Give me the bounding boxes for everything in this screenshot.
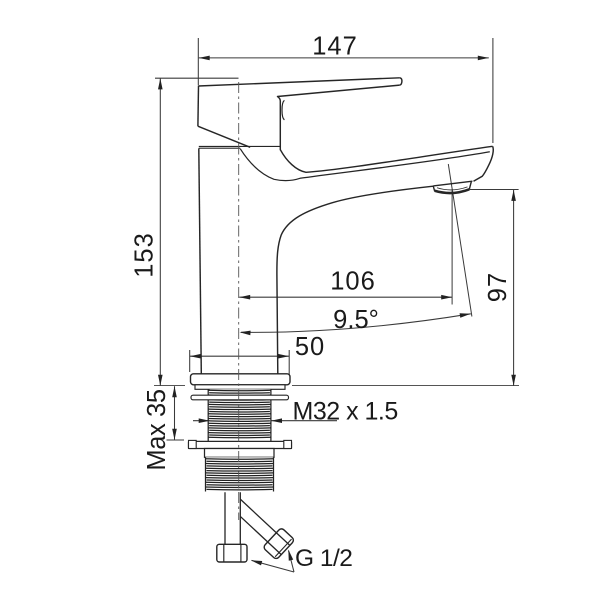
svg-text:9.5°: 9.5°	[333, 306, 379, 334]
svg-text:147: 147	[312, 33, 358, 61]
svg-text:153: 153	[131, 232, 159, 278]
svg-text:50: 50	[295, 333, 325, 361]
svg-text:G 1/2: G 1/2	[295, 545, 352, 572]
svg-text:M32 x 1.5: M32 x 1.5	[293, 398, 398, 426]
svg-text:106: 106	[330, 268, 376, 296]
svg-text:97: 97	[484, 272, 512, 302]
svg-text:Max 35: Max 35	[143, 389, 171, 470]
